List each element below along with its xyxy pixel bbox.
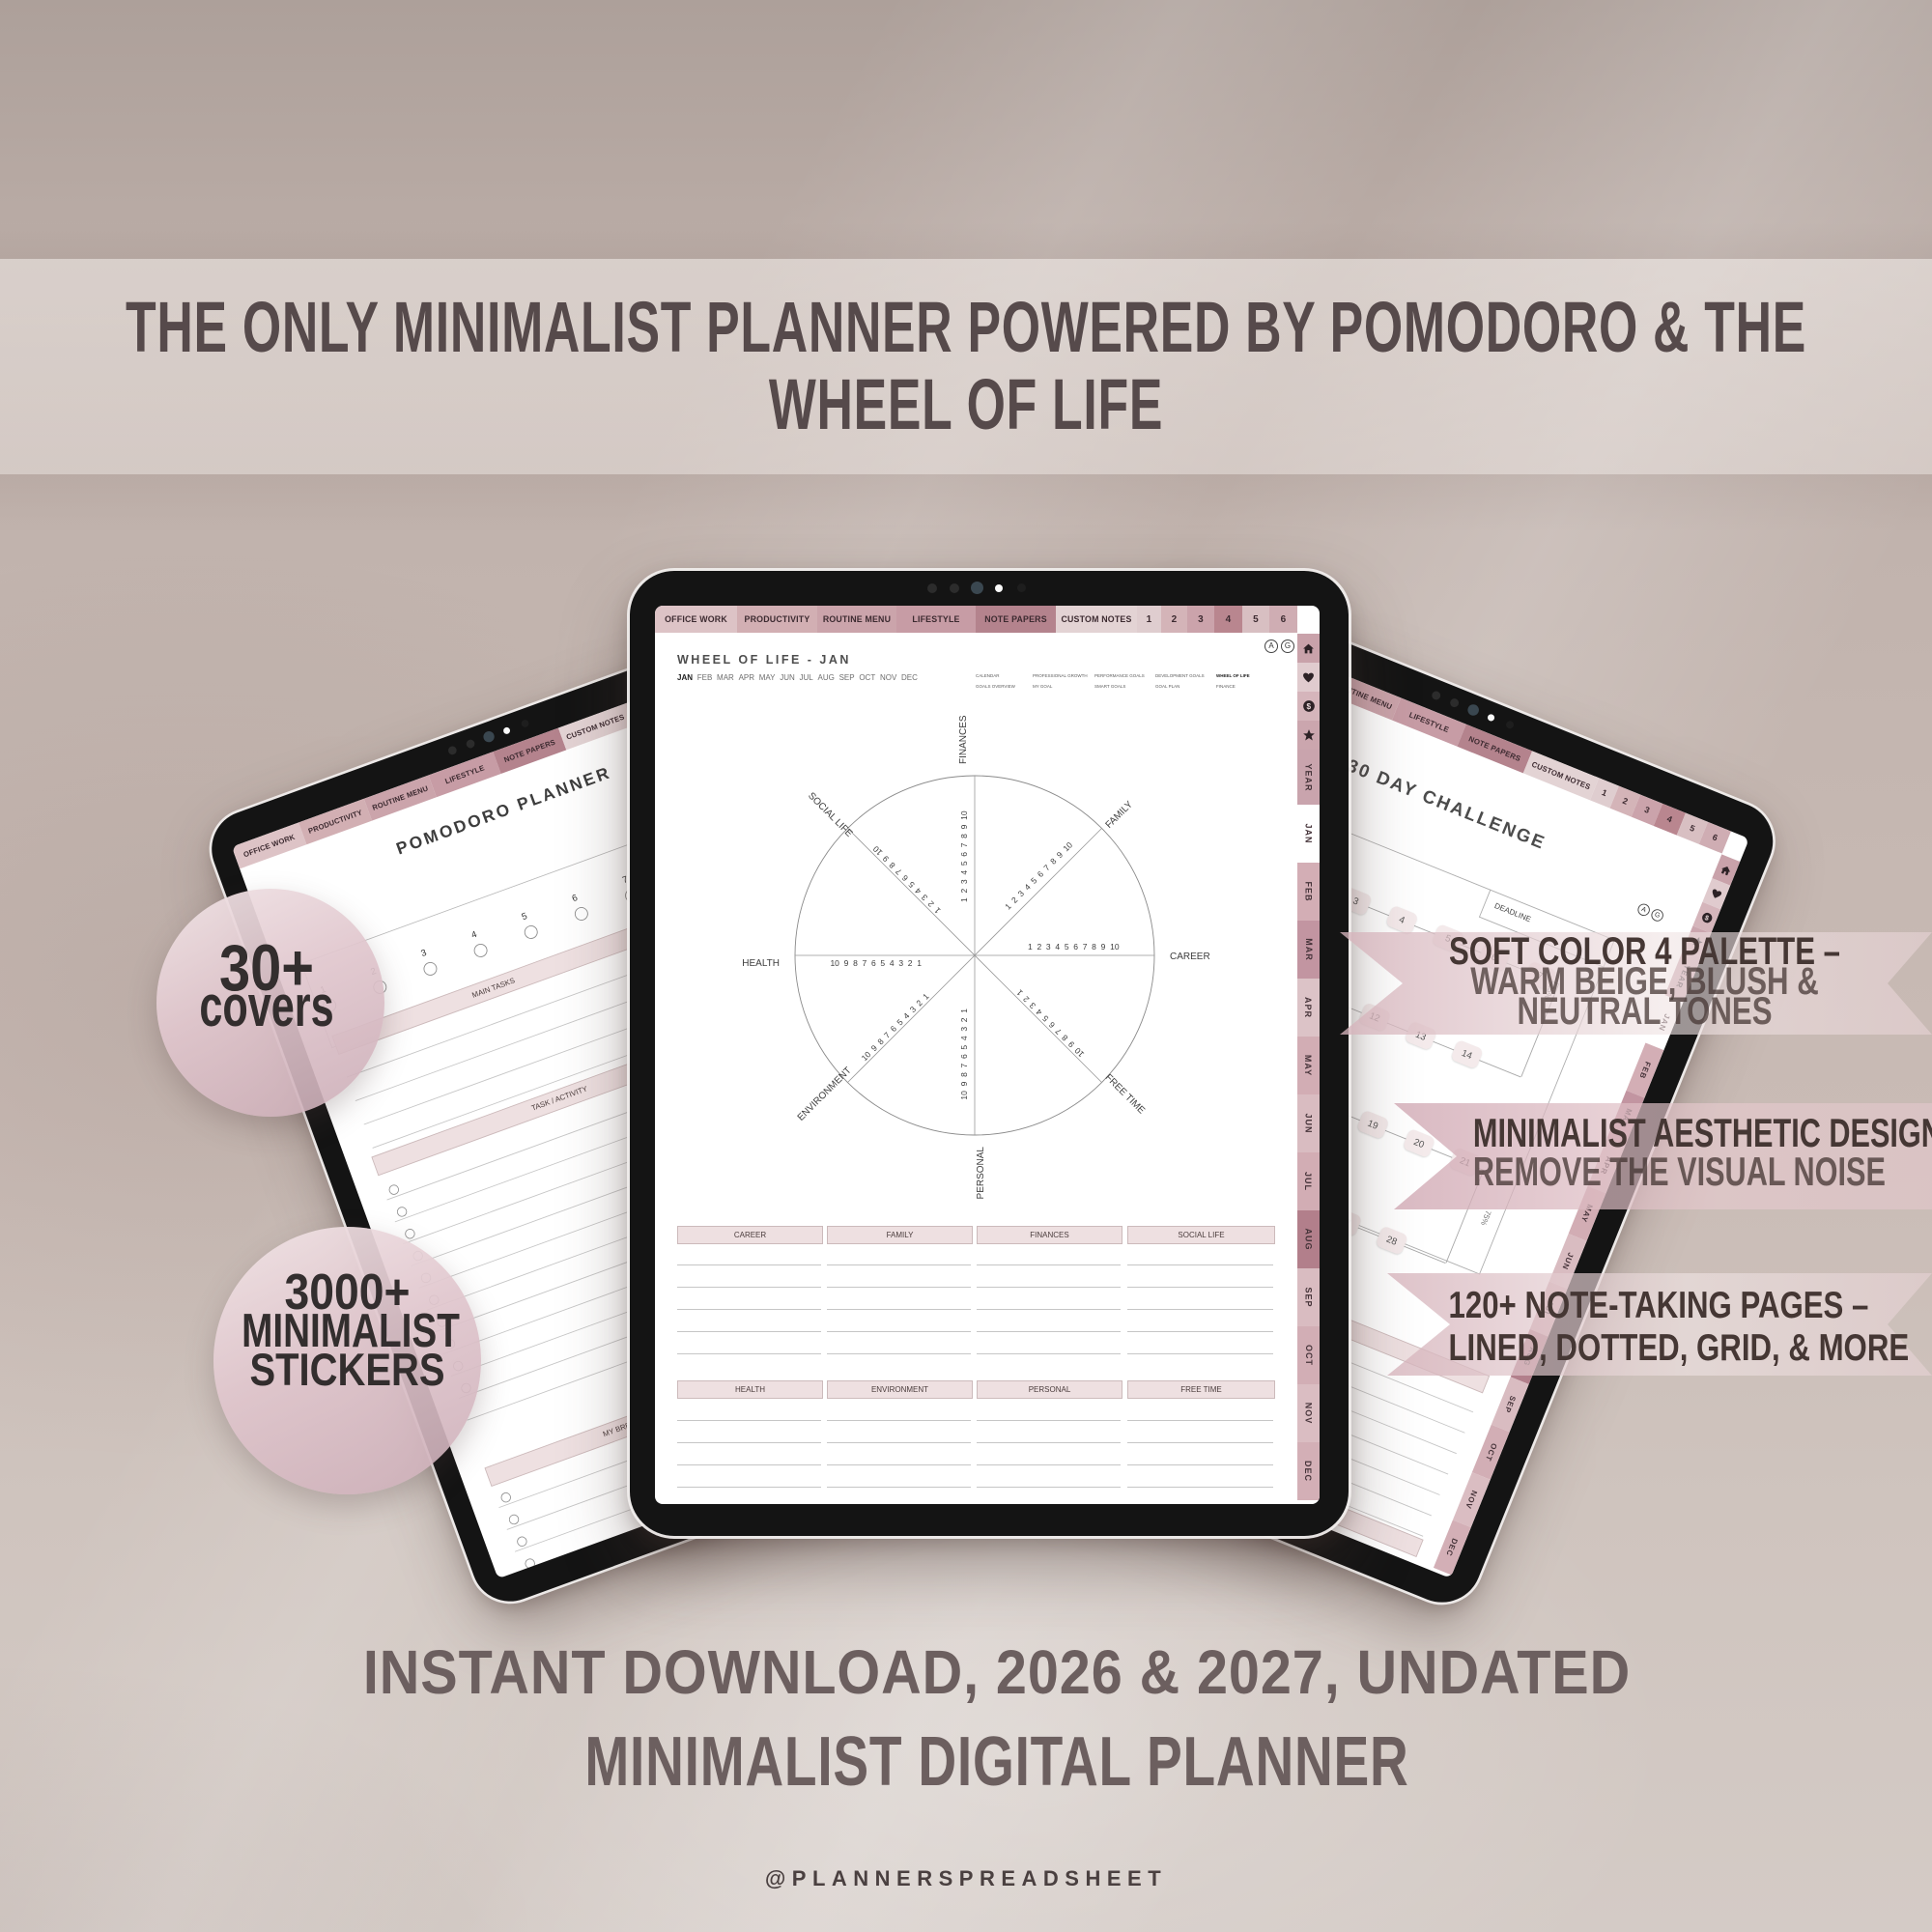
- svg-text:HEALTH: HEALTH: [742, 958, 780, 969]
- svg-text:10 9 8 7 6 5 4 3 2 1: 10 9 8 7 6 5 4 3 2 1: [860, 991, 931, 1063]
- svg-text:10 9 8 7 6 5 4 3 2 1: 10 9 8 7 6 5 4 3 2 1: [959, 1009, 969, 1100]
- svg-text:1 2 3 4 5 6 7 8 9 10: 1 2 3 4 5 6 7 8 9 10: [870, 844, 942, 916]
- svg-text:FREE TIME: FREE TIME: [1103, 1072, 1148, 1117]
- svg-text:1 2 3 4 5 6 7 8 9 10: 1 2 3 4 5 6 7 8 9 10: [1003, 839, 1074, 911]
- svg-text:ENVIRONMENT: ENVIRONMENT: [796, 1065, 854, 1123]
- svg-text:$: $: [1306, 702, 1311, 711]
- svg-text:FAMILY: FAMILY: [1104, 799, 1136, 831]
- svg-text:SOCIAL LIFE: SOCIAL LIFE: [806, 791, 855, 840]
- svg-text:PERSONAL: PERSONAL: [976, 1147, 986, 1200]
- svg-text:1 2 3 4 5 6 7 8 9 10: 1 2 3 4 5 6 7 8 9 10: [959, 810, 969, 902]
- svg-text:10 9 8 7 6 5 4 3 2 1: 10 9 8 7 6 5 4 3 2 1: [830, 958, 922, 968]
- svg-text:FINANCES: FINANCES: [958, 715, 969, 764]
- svg-text:CAREER: CAREER: [1170, 952, 1210, 962]
- svg-text:1 2 3 4 5 6 7 8 9 10: 1 2 3 4 5 6 7 8 9 10: [1028, 942, 1120, 952]
- svg-text:10 9 8 7 6 5 4 3 2 1: 10 9 8 7 6 5 4 3 2 1: [1014, 987, 1086, 1059]
